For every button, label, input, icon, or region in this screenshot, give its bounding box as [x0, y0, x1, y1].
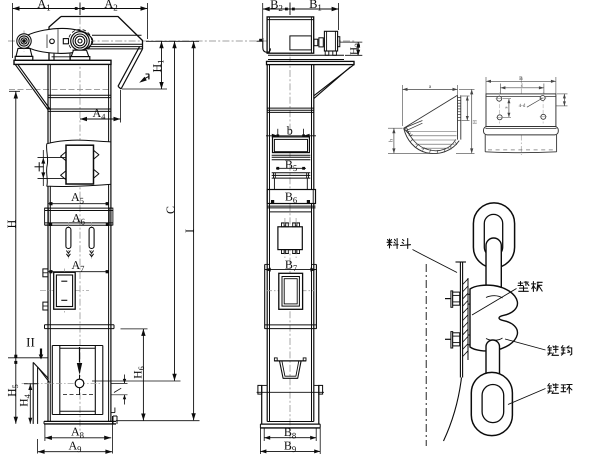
svg-text:C: C	[164, 206, 178, 214]
svg-text:I: I	[183, 229, 197, 233]
svg-text:A2: A2	[104, 0, 118, 12]
svg-text:4-d: 4-d	[519, 103, 526, 109]
svg-text:H: H	[472, 120, 478, 124]
svg-text:A1: A1	[37, 0, 51, 12]
svg-text:B: B	[519, 76, 523, 82]
svg-text:s: s	[505, 106, 510, 108]
svg-text:b: b	[287, 124, 293, 138]
svg-text:B1: B1	[309, 0, 322, 13]
svg-text:II: II	[26, 334, 35, 349]
svg-text:h: h	[389, 139, 395, 142]
svg-text:H: H	[4, 219, 18, 228]
